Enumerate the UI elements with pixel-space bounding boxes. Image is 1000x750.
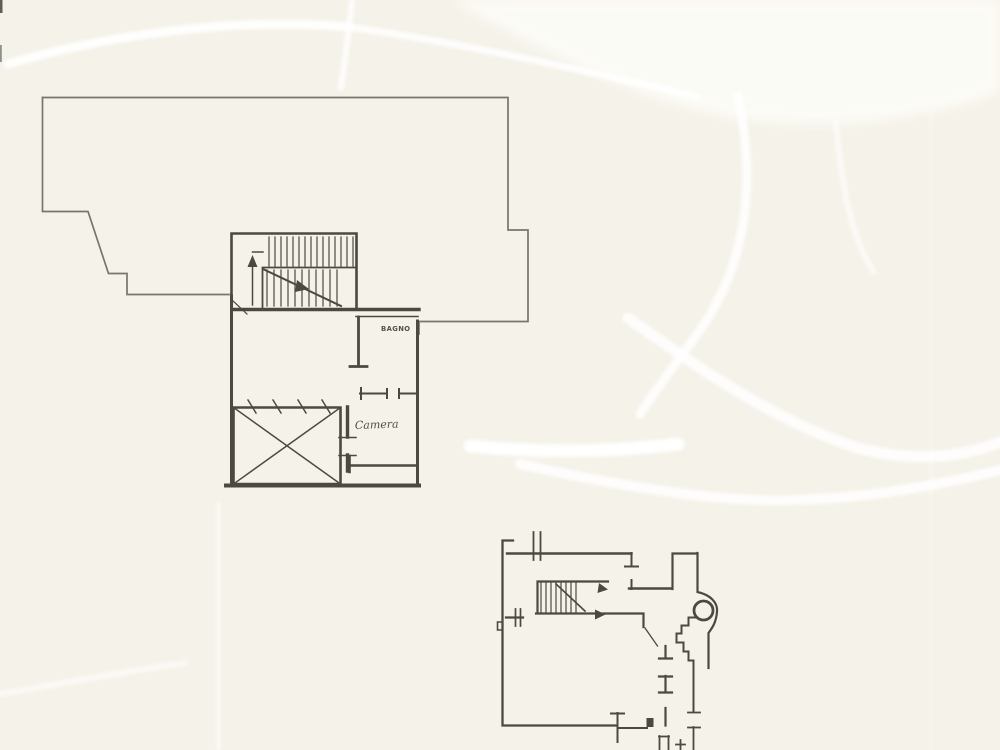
stair-upper-flight-treads	[269, 237, 353, 266]
scanned-floorplan-page: BAGNO Camera	[0, 0, 1000, 750]
room-label-bagno: BAGNO	[381, 325, 411, 333]
edge-mark-second	[0, 45, 2, 62]
bottom-solid-jamb	[647, 718, 654, 727]
edge-mark-top	[0, 0, 3, 13]
crease-middle-band	[470, 444, 678, 451]
floorplan-drawing: BAGNO Camera	[0, 0, 1000, 750]
room-label-camera: Camera	[355, 417, 399, 432]
